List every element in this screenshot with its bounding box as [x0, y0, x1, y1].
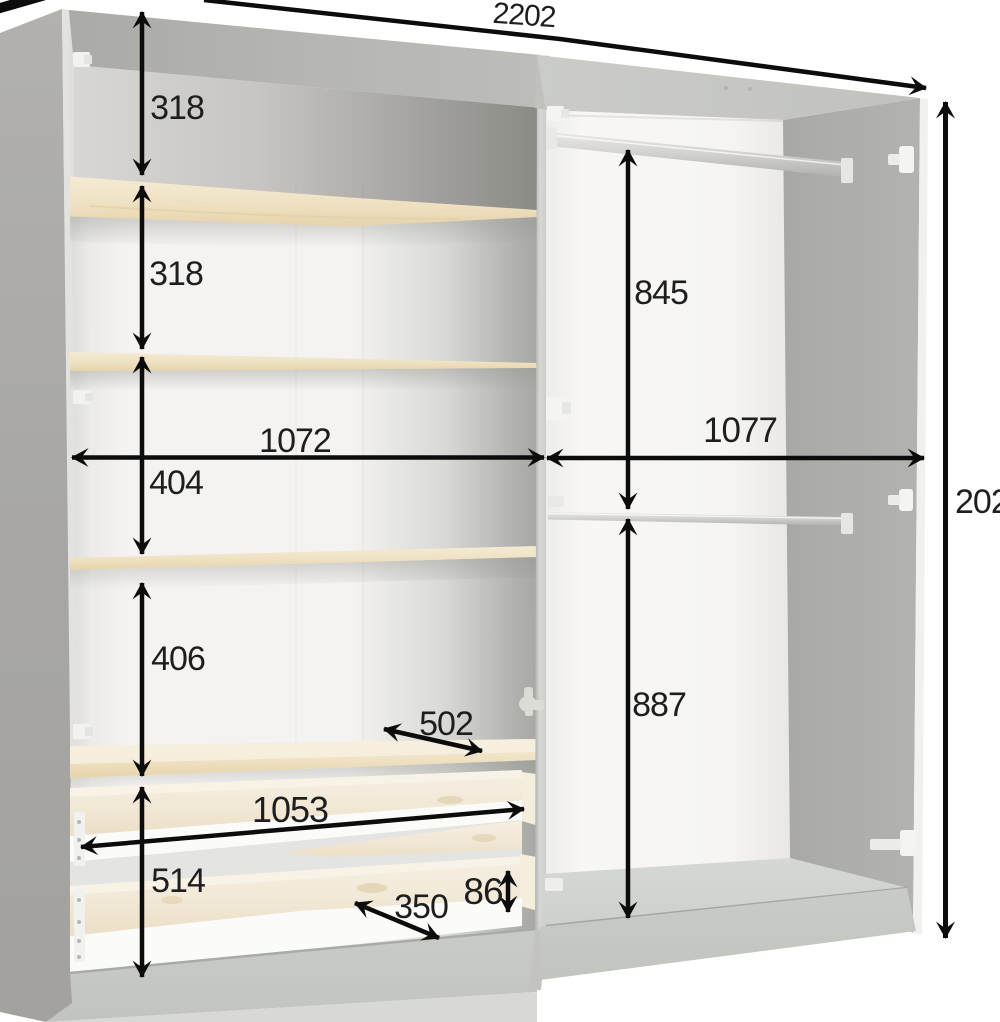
svg-text:350: 350 [394, 888, 448, 926]
svg-text:86: 86 [463, 871, 502, 912]
svg-text:887: 887 [632, 686, 686, 724]
svg-text:2023: 2023 [955, 483, 1000, 521]
svg-text:1053: 1053 [252, 789, 328, 830]
svg-text:1077: 1077 [703, 411, 777, 450]
svg-text:502: 502 [419, 705, 473, 743]
svg-text:845: 845 [634, 274, 688, 312]
svg-text:514: 514 [151, 862, 205, 900]
svg-text:404: 404 [149, 464, 203, 502]
svg-text:406: 406 [151, 640, 205, 678]
svg-text:318: 318 [149, 255, 203, 293]
svg-text:318: 318 [150, 89, 204, 127]
svg-text:2202: 2202 [492, 0, 557, 34]
svg-text:1072: 1072 [259, 422, 331, 460]
